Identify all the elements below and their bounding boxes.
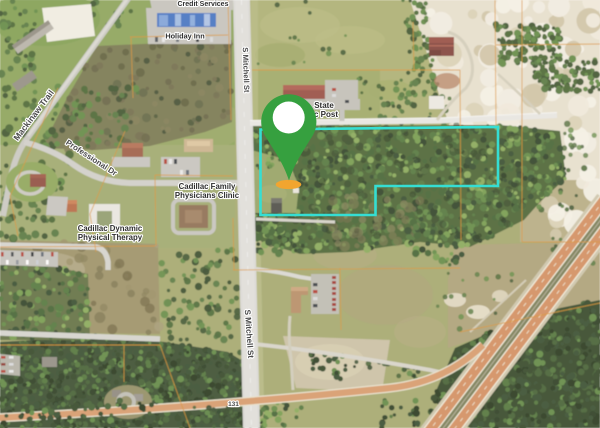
svg-text:Physical Therapy: Physical Therapy — [78, 233, 143, 242]
svg-text:131: 131 — [228, 401, 239, 408]
svg-text:S Mitchell St: S Mitchell St — [241, 47, 252, 93]
svg-text:Holiday Inn: Holiday Inn — [165, 32, 204, 41]
svg-text:c Post: c Post — [314, 110, 338, 119]
svg-text:Cadillac Dynamic: Cadillac Dynamic — [78, 224, 143, 233]
svg-text:Credit Services: Credit Services — [178, 1, 229, 8]
svg-text:State: State — [314, 101, 334, 110]
svg-text:Physicians Clinic: Physicians Clinic — [175, 191, 240, 200]
svg-text:Cadillac Family: Cadillac Family — [179, 182, 236, 191]
